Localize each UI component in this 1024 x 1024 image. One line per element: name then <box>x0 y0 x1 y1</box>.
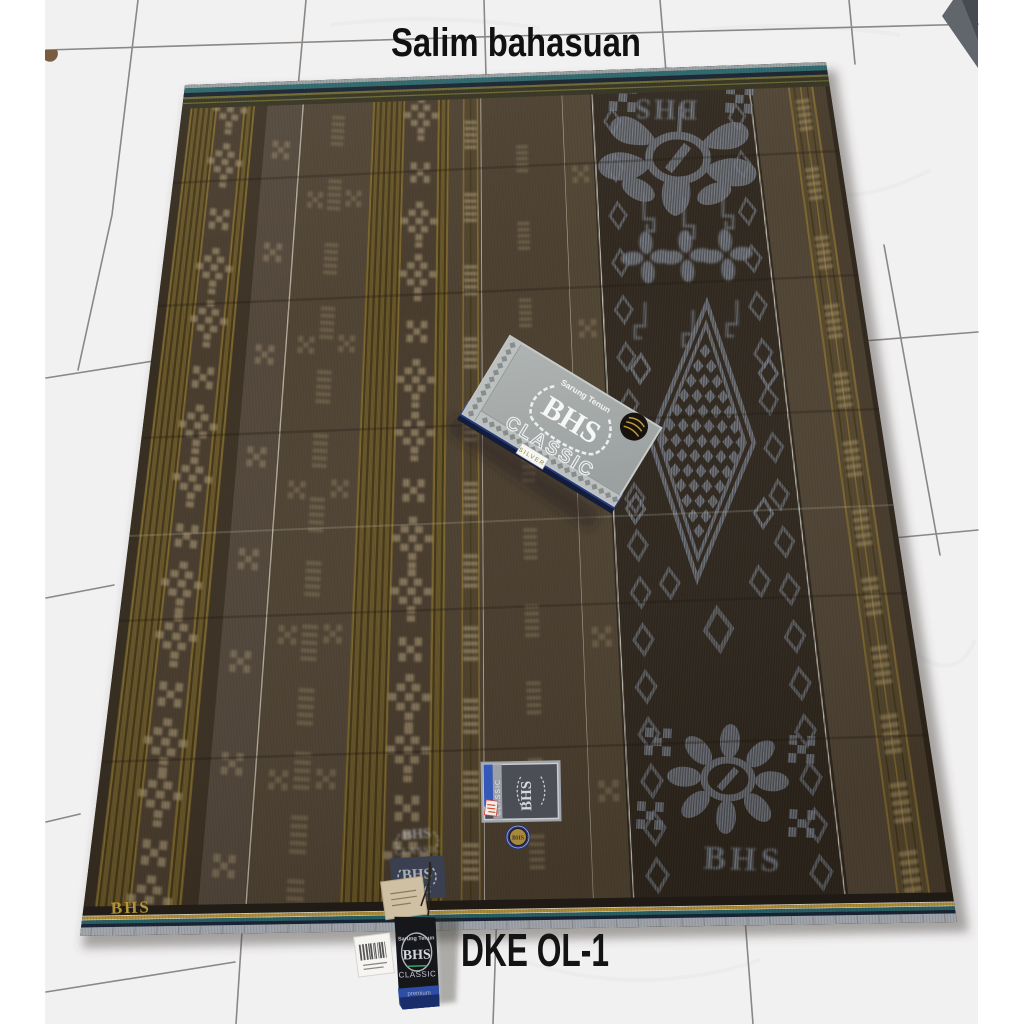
svg-text:BHS: BHS <box>403 948 432 964</box>
svg-text:BHS: BHS <box>519 781 536 811</box>
svg-text:DKE OL-1: DKE OL-1 <box>461 924 609 976</box>
svg-text:BHS: BHS <box>512 836 525 842</box>
svg-text:CLASSIC: CLASSIC <box>398 969 436 979</box>
svg-text:premium: premium <box>407 991 431 998</box>
svg-text:Salim bahasuan: Salim bahasuan <box>391 21 641 65</box>
svg-text:BHS: BHS <box>402 825 432 843</box>
